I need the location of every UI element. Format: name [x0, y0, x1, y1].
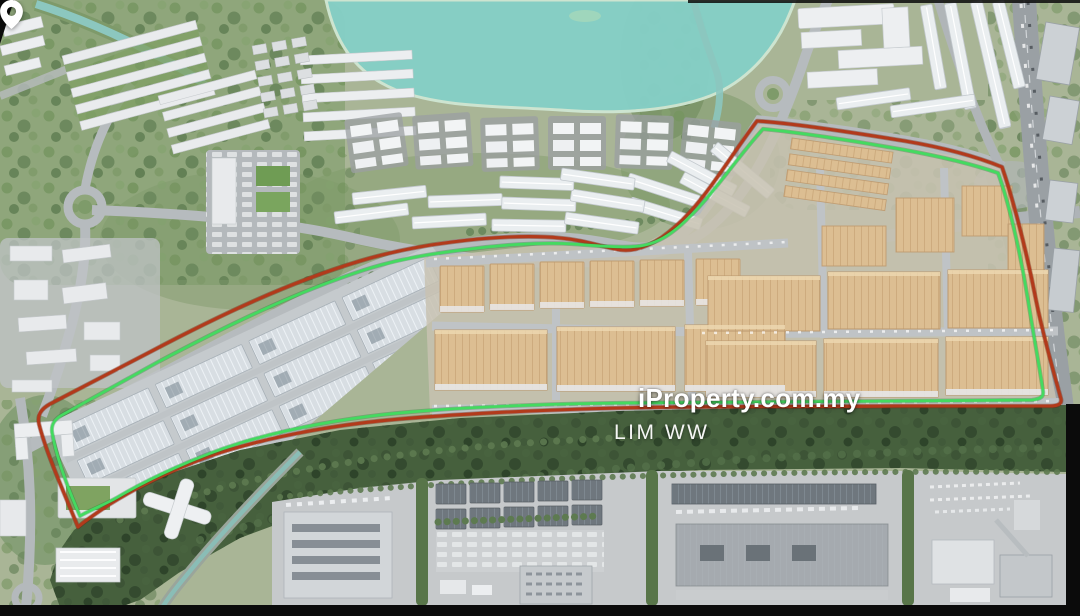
factory-zone	[272, 470, 1066, 606]
roundabout-west-island	[78, 200, 92, 214]
aerial-map: iProperty.com.my LIM WW	[0, 0, 1080, 616]
factory-plant-3	[672, 484, 888, 600]
map-render	[0, 0, 1080, 616]
parking-lots-northwest	[206, 150, 300, 254]
roundabout-east-island	[767, 88, 779, 100]
factory-plant-2	[436, 480, 604, 604]
town-blocks-west	[0, 238, 160, 392]
factory-plant-1	[284, 498, 392, 598]
